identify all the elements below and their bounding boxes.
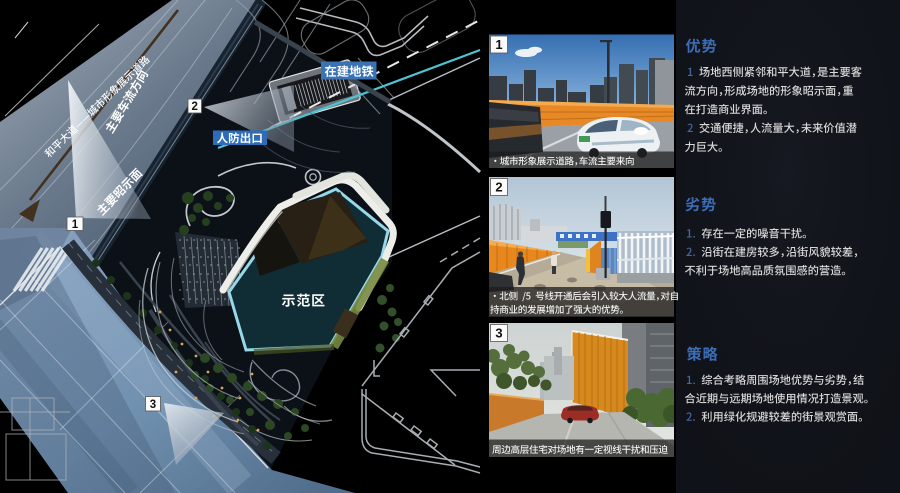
svg-text:3: 3 [150, 399, 156, 411]
svg-text:2: 2 [192, 101, 198, 113]
svg-text:1: 1 [495, 37, 502, 52]
svg-text:3: 3 [495, 326, 502, 341]
svg-text:1: 1 [72, 219, 79, 231]
svg-text:2: 2 [495, 180, 502, 195]
